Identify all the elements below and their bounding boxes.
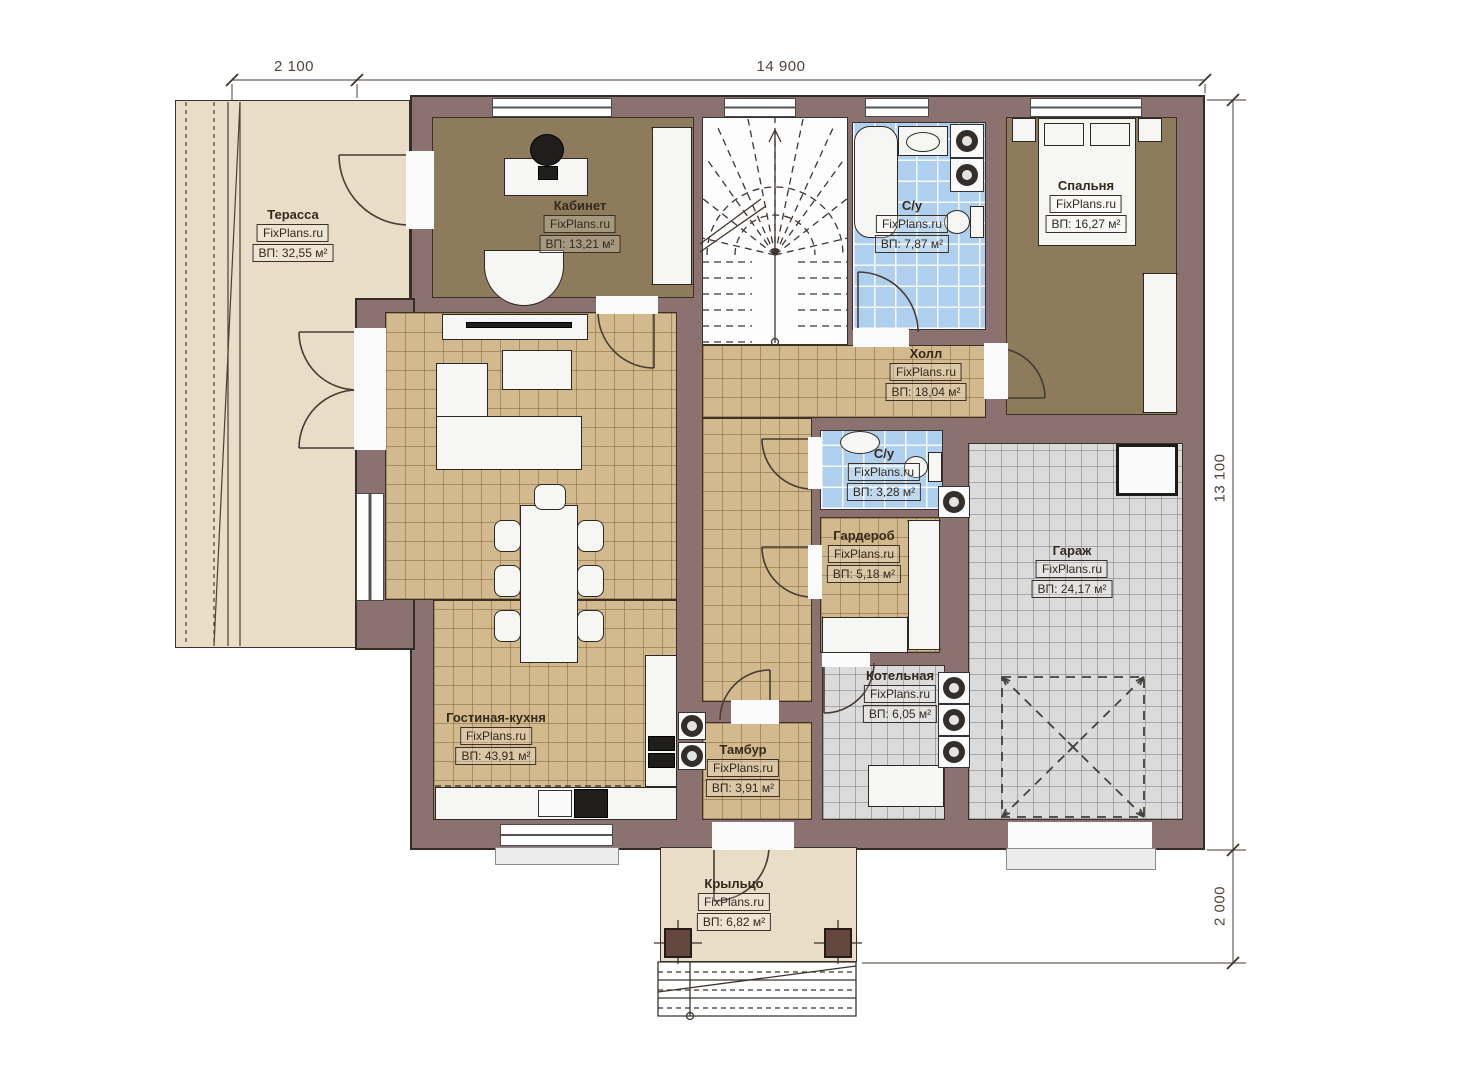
- room-brand: FixPlans.ru: [698, 893, 770, 911]
- door-opening-vestibule-north: [731, 700, 779, 724]
- room-name: Гостиная-кухня: [446, 710, 546, 725]
- room-label-living-kitchen: Гостиная-кухня FixPlans.ru ВП: 43,91 м²: [446, 710, 546, 765]
- porch-post: [824, 928, 852, 958]
- door-opening-office-terrace: [406, 151, 434, 229]
- toilet-tank: [970, 206, 984, 238]
- toilet-tank: [928, 452, 942, 482]
- window-living-west: [356, 493, 384, 601]
- window-bathroom1: [865, 98, 929, 117]
- sofa-seat: [436, 416, 582, 470]
- room-name: Тамбур: [706, 742, 780, 757]
- kitchen-sink: [538, 790, 572, 817]
- room-brand: FixPlans.ru: [828, 545, 900, 563]
- garage-apron: [1006, 848, 1156, 870]
- room-name: Кабинет: [540, 198, 621, 213]
- room-brand: FixPlans.ru: [1050, 195, 1122, 213]
- coffee-table: [502, 350, 572, 390]
- room-brand: FixPlans.ru: [1036, 560, 1108, 578]
- washer-drum-icon: [956, 164, 978, 186]
- window-kitchen-south: [500, 824, 613, 846]
- room-name: Крыльцо: [697, 876, 771, 891]
- room-name: Гардероб: [827, 528, 901, 543]
- dining-chair: [494, 520, 521, 552]
- room-name: Гараж: [1032, 543, 1113, 558]
- dimension-terrace-width: 2 100: [274, 58, 314, 75]
- room-area: ВП: 3,91 м²: [706, 779, 780, 797]
- door-opening-bathroom2: [808, 437, 822, 489]
- corridor-floor: [702, 418, 812, 702]
- window-sill-kitchen: [495, 847, 619, 865]
- room-area: ВП: 16,27 м²: [1046, 215, 1127, 233]
- room-name: С/у: [847, 446, 921, 461]
- pipe-icon: [943, 709, 965, 731]
- room-area: ВП: 32,55 м²: [253, 244, 334, 262]
- stove-burners: [648, 736, 675, 751]
- nightstand: [1138, 118, 1162, 142]
- pipe-icon: [681, 745, 703, 767]
- dining-chair: [494, 610, 521, 642]
- room-area: ВП: 18,04 м²: [886, 383, 967, 401]
- room-label-bedroom: Спальня FixPlans.ru ВП: 16,27 м²: [1046, 178, 1127, 233]
- door-opening-bedroom: [984, 343, 1008, 399]
- nightstand: [1012, 118, 1036, 142]
- dining-chair: [577, 520, 604, 552]
- room-name: Котельная: [863, 668, 937, 683]
- dining-table: [520, 505, 578, 663]
- room-label-terrace: Терасса FixPlans.ru ВП: 32,55 м²: [253, 207, 334, 262]
- garage-equipment-box: [1116, 444, 1178, 496]
- dimension-house-depth: 13 100: [1212, 454, 1229, 503]
- room-brand: FixPlans.ru: [707, 759, 779, 777]
- door-opening-living-terrace: [354, 328, 386, 450]
- room-label-porch: Крыльцо FixPlans.ru ВП: 6,82 м²: [697, 876, 771, 931]
- door-opening-office-living: [596, 296, 658, 314]
- room-area: ВП: 43,91 м²: [456, 747, 537, 765]
- room-brand: FixPlans.ru: [876, 215, 948, 233]
- window-staircase: [724, 98, 796, 117]
- room-brand: FixPlans.ru: [544, 215, 616, 233]
- window-office: [492, 98, 612, 117]
- desk-monitor: [538, 166, 558, 180]
- washer-drum-icon: [956, 130, 978, 152]
- room-brand: FixPlans.ru: [848, 463, 920, 481]
- office-chair: [530, 134, 564, 166]
- room-area: ВП: 6,82 м²: [697, 913, 771, 931]
- window-bedroom: [1030, 98, 1142, 117]
- room-label-garage: Гараж FixPlans.ru ВП: 24,17 м²: [1032, 543, 1113, 598]
- room-area: ВП: 24,17 м²: [1032, 580, 1113, 598]
- door-opening-vestibule-porch: [712, 822, 794, 850]
- pillow: [1090, 123, 1130, 146]
- tv: [466, 322, 572, 328]
- room-brand: FixPlans.ru: [257, 224, 329, 242]
- room-name: Холл: [886, 346, 967, 361]
- room-label-office: Кабинет FixPlans.ru ВП: 13,21 м²: [540, 198, 621, 253]
- room-brand: FixPlans.ru: [460, 727, 532, 745]
- pillow: [1044, 123, 1084, 146]
- room-brand: FixPlans.ru: [864, 685, 936, 703]
- office-closet: [652, 127, 692, 285]
- sink: [906, 132, 940, 152]
- room-garage-floor: [968, 443, 1183, 820]
- room-area: ВП: 3,28 м²: [847, 483, 921, 501]
- room-label-bathroom1: С/у FixPlans.ru ВП: 7,87 м²: [875, 198, 949, 253]
- dining-chair: [494, 565, 521, 597]
- floor-plan: 2 100 14 900 13 100 2 000 Терасса FixPla…: [0, 0, 1473, 1080]
- pipe-icon: [681, 715, 703, 737]
- room-area: ВП: 5,18 м²: [827, 565, 901, 583]
- room-brand: FixPlans.ru: [890, 363, 962, 381]
- room-label-bathroom2: С/у FixPlans.ru ВП: 3,28 м²: [847, 446, 921, 501]
- wardrobe-lower-unit: [822, 617, 908, 653]
- dimension-house-width: 14 900: [757, 58, 806, 75]
- dish-rack: [574, 789, 608, 818]
- dining-chair: [577, 565, 604, 597]
- pipe-icon: [943, 677, 965, 699]
- garage-door-opening: [1008, 822, 1152, 848]
- room-area: ВП: 6,05 м²: [863, 705, 937, 723]
- door-opening-boiler: [822, 651, 870, 667]
- room-name: Терасса: [253, 207, 334, 222]
- porch-post: [664, 928, 692, 958]
- boiler-unit: [868, 765, 944, 807]
- room-label-vestibule: Тамбур FixPlans.ru ВП: 3,91 м²: [706, 742, 780, 797]
- stove-burners: [648, 753, 675, 768]
- dimension-porch-depth: 2 000: [1212, 886, 1229, 926]
- room-label-hall: Холл FixPlans.ru ВП: 18,04 м²: [886, 346, 967, 401]
- door-opening-bathroom1: [853, 328, 909, 347]
- staircase-floor: [702, 117, 848, 345]
- dining-chair: [577, 610, 604, 642]
- pipe-icon: [943, 741, 965, 763]
- bedroom-wardrobe-unit: [1143, 273, 1177, 413]
- room-area: ВП: 13,21 м²: [540, 235, 621, 253]
- room-label-wardrobe: Гардероб FixPlans.ru ВП: 5,18 м²: [827, 528, 901, 583]
- room-label-boiler: Котельная FixPlans.ru ВП: 6,05 м²: [863, 668, 937, 723]
- dining-chair: [534, 484, 566, 510]
- door-opening-wardrobe: [808, 545, 822, 599]
- pipe-icon: [943, 491, 965, 513]
- wardrobe-unit: [908, 520, 940, 650]
- room-name: С/у: [875, 198, 949, 213]
- room-name: Спальня: [1046, 178, 1127, 193]
- room-area: ВП: 7,87 м²: [875, 235, 949, 253]
